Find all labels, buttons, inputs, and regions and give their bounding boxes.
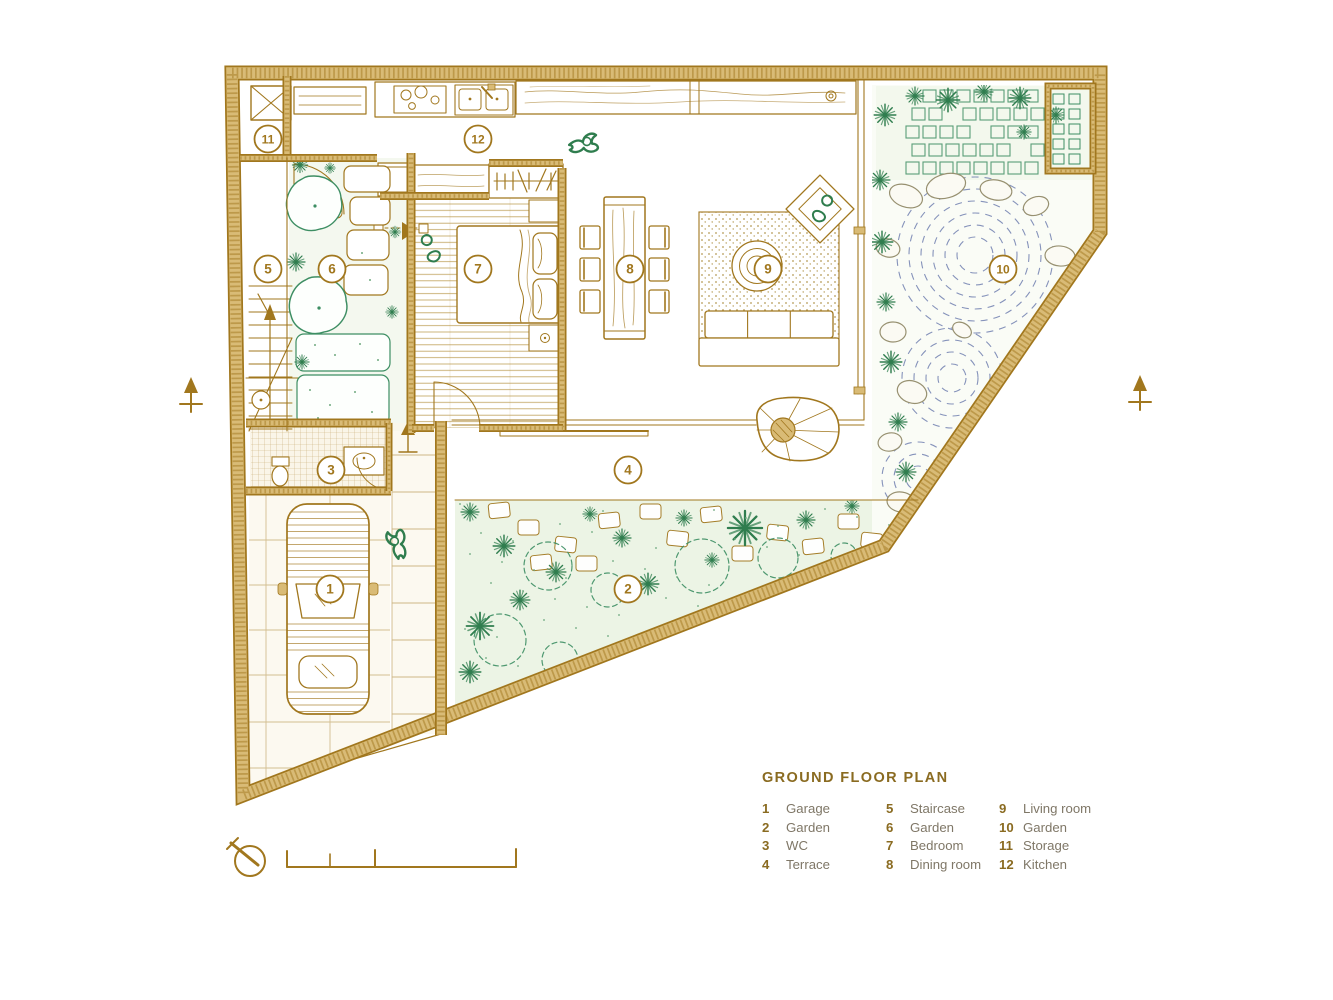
legend-item-label: Garage xyxy=(786,800,830,819)
terrace-planter xyxy=(757,398,839,461)
legend-column: 9Living room10Garden11Storage12Kitchen xyxy=(999,800,1129,874)
legend-item-label: Kitchen xyxy=(1023,856,1067,875)
legend-item: 3WC xyxy=(762,837,886,856)
legend-item: 5Staircase xyxy=(886,800,999,819)
room-marker-number: 5 xyxy=(264,262,272,277)
legend-item: 12Kitchen xyxy=(999,856,1129,875)
room-marker-number: 9 xyxy=(764,262,772,277)
legend-item: 1Garage xyxy=(762,800,886,819)
north-arrow-icon xyxy=(1129,375,1151,410)
room-marker-12: 12 xyxy=(465,126,492,153)
cooktop xyxy=(394,86,446,113)
north-arrow-icon xyxy=(180,377,202,412)
legend-item-label: Garden xyxy=(910,819,954,838)
legend-item-label: Dining room xyxy=(910,856,981,875)
floor-plan-page: 123456789101112 GROUND FLOOR PLAN 1Garag… xyxy=(0,0,1333,1000)
room-marker-number: 2 xyxy=(624,582,632,597)
legend-item-number: 12 xyxy=(999,856,1023,875)
legend-item-label: Garden xyxy=(1023,819,1067,838)
legend-item: 11Storage xyxy=(999,837,1129,856)
legend-item-label: Living room xyxy=(1023,800,1091,819)
room-marker-number: 12 xyxy=(471,133,485,147)
legend-item-number: 10 xyxy=(999,819,1023,838)
legend-item-label: Staircase xyxy=(910,800,965,819)
room-marker-8: 8 xyxy=(617,256,644,283)
room-marker-9: 9 xyxy=(755,256,782,283)
room-marker-number: 11 xyxy=(262,133,275,147)
legend-item-number: 6 xyxy=(886,819,910,838)
legend-item: 6Garden xyxy=(886,819,999,838)
legend-item-number: 5 xyxy=(886,800,910,819)
kitchen-island xyxy=(378,163,489,197)
room-marker-5: 5 xyxy=(255,256,282,283)
staircase xyxy=(249,286,292,431)
legend-item-number: 7 xyxy=(886,837,910,856)
storage-room xyxy=(251,86,366,120)
room-marker-number: 6 xyxy=(328,262,336,277)
legend-item-label: Storage xyxy=(1023,837,1069,856)
room-marker-number: 3 xyxy=(327,463,335,478)
legend-item: 4Terrace xyxy=(762,856,886,875)
scale-bar xyxy=(287,849,516,867)
legend-item-number: 1 xyxy=(762,800,786,819)
kitchen-counter xyxy=(375,81,856,117)
glass-wall xyxy=(854,73,865,420)
legend-item-number: 3 xyxy=(762,837,786,856)
room-marker-number: 7 xyxy=(474,262,482,277)
room-marker-number: 8 xyxy=(626,262,634,277)
legend-item-label: Garden xyxy=(786,819,830,838)
legend-item-label: Bedroom xyxy=(910,837,964,856)
room-marker-number: 10 xyxy=(996,263,1010,277)
legend-column: 5Staircase6Garden7Bedroom8Dining room xyxy=(886,800,999,874)
room-marker-11: 11 xyxy=(255,126,282,153)
legend-title: GROUND FLOOR PLAN xyxy=(762,770,1182,786)
wardrobe xyxy=(489,164,563,198)
sofa xyxy=(699,311,839,366)
legend-column: 1Garage2Garden3WC4Terrace xyxy=(762,800,886,874)
room-marker-3: 3 xyxy=(318,457,345,484)
legend-item: 2Garden xyxy=(762,819,886,838)
room-marker-6: 6 xyxy=(319,256,346,283)
legend: GROUND FLOOR PLAN 1Garage2Garden3WC4Terr… xyxy=(762,770,1182,874)
legend-columns: 1Garage2Garden3WC4Terrace5Staircase6Gard… xyxy=(762,800,1182,874)
legend-item-number: 4 xyxy=(762,856,786,875)
room-marker-number: 4 xyxy=(624,463,632,478)
room-marker-10: 10 xyxy=(990,256,1017,283)
room-marker-4: 4 xyxy=(615,457,642,484)
legend-item: 7Bedroom xyxy=(886,837,999,856)
legend-item: 8Dining room xyxy=(886,856,999,875)
legend-item-number: 11 xyxy=(999,837,1023,856)
room-marker-2: 2 xyxy=(615,576,642,603)
legend-item-number: 9 xyxy=(999,800,1023,819)
legend-item-number: 8 xyxy=(886,856,910,875)
room-marker-number: 1 xyxy=(326,582,334,597)
legend-item-label: WC xyxy=(786,837,808,856)
bird-icon xyxy=(568,133,598,155)
legend-item-label: Terrace xyxy=(786,856,830,875)
legend-item: 9Living room xyxy=(999,800,1129,819)
room-marker-1: 1 xyxy=(317,576,344,603)
compass-icon xyxy=(227,838,265,876)
sideboard xyxy=(516,81,856,114)
legend-item: 10Garden xyxy=(999,819,1129,838)
room-marker-7: 7 xyxy=(465,256,492,283)
legend-item-number: 2 xyxy=(762,819,786,838)
car xyxy=(278,504,378,714)
